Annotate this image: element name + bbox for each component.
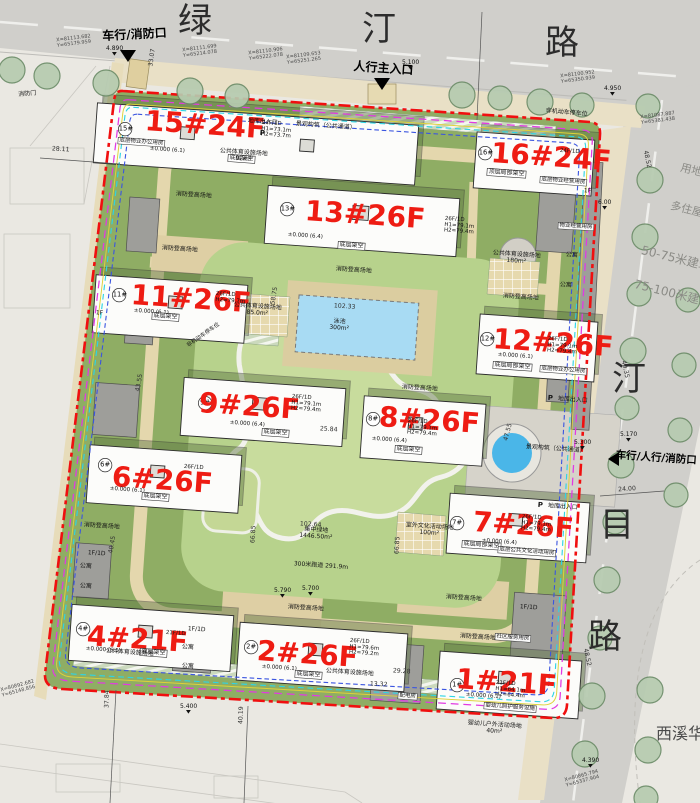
spot-elevation: 5.700 <box>302 586 319 598</box>
dimension-label: 13.32 <box>370 681 388 689</box>
right-road-name-char-2: 目 <box>600 508 634 544</box>
right-road-name-char-3: 路 <box>588 620 622 656</box>
elevation-marker-icon <box>280 594 285 600</box>
dimension-label: 40.19 <box>238 706 245 724</box>
pool-label: 泳池300m² <box>329 318 350 332</box>
entrance-arrow-down-icon <box>374 78 390 98</box>
apartment-tag: 公寓 <box>182 644 194 651</box>
elevation-marker-icon <box>186 710 191 716</box>
garage-entry-p-symbol: P <box>547 395 553 403</box>
dimension-label: 66.85 <box>394 536 402 554</box>
dimension-label: 25.84 <box>320 426 338 434</box>
spot-elevation: 5.100 <box>402 60 419 72</box>
adjacent-project-name: 西溪华府 <box>656 726 700 743</box>
building-7-spec: 26F/1DH1=79.1mH2=79.4m <box>521 514 552 533</box>
building-13-number: 13# <box>280 202 294 216</box>
elevation-marker-icon <box>602 206 607 212</box>
f1-tag: 1F <box>584 188 592 195</box>
spot-elevation: 6.00 <box>598 200 611 212</box>
f1d-tag: 1F/1D <box>520 604 538 612</box>
garage-entry-p-symbol: P <box>537 502 543 510</box>
building-13-label: 13#26F <box>304 196 426 234</box>
building-12-spec: 26F/1DH1=79.1mH2=79.4m <box>547 336 578 355</box>
dimension-label: 29.28 <box>393 668 411 676</box>
apartment-tag: 公寓 <box>566 252 578 259</box>
f1d-tag: 1F/1D <box>188 626 206 634</box>
building-15-number: 15# <box>118 122 132 136</box>
spot-elevation: 5.790 <box>274 588 291 600</box>
building-15-label: 15#24F <box>144 106 266 144</box>
top-road-name-char-3: 路 <box>545 26 579 62</box>
elevation-marker-icon <box>408 66 413 72</box>
apartment-tag: 公寓 <box>80 563 92 570</box>
f1-tag: 1F <box>96 310 104 317</box>
power-room-tag: 配电房 <box>398 692 418 700</box>
spot-elevation: 4.950 <box>604 86 621 98</box>
building-6-number: 6# <box>98 458 112 472</box>
building-9-spec: 26F/1DH1=79.1mH2=79.4m <box>291 394 322 413</box>
elevation-marker-icon <box>112 52 117 58</box>
spot-elevation: 4.390 <box>582 758 599 770</box>
building-13-spec: 26F/1DH1=79.1mH2=79.4m <box>444 216 475 235</box>
site-plan-canvas: 绿 汀 路 汀 目 路 车行/消防口 人行主入口 车行/人行/消防口 15# 1… <box>0 0 700 803</box>
apartment-tag: 公寓 <box>80 583 92 590</box>
fountain-water <box>492 433 532 473</box>
spot-elevation: 5.170 <box>620 432 637 444</box>
site-plan-drawing <box>0 0 700 803</box>
building-2-spec: 26F/1DH1=79.6mH2=79.2m <box>349 638 380 657</box>
top-road-name-char-2: 汀 <box>362 12 396 48</box>
elevation-marker-icon <box>588 764 593 770</box>
right-road-name-char-1: 汀 <box>612 362 646 398</box>
elevation-marker-icon <box>626 438 631 444</box>
spot-elevation: 5.400 <box>180 704 197 716</box>
spot-elevation: 5.300 <box>574 440 591 452</box>
dimension-label: 66.85 <box>250 525 258 543</box>
building-9-label: 9#26F <box>198 388 301 424</box>
top-road-name-char-1: 绿 <box>178 4 212 40</box>
garage-entry-p-symbol: P <box>259 130 265 138</box>
apartment-tag: 公寓 <box>182 663 194 670</box>
swimming-pool <box>282 280 438 376</box>
elevation-marker-icon <box>580 446 585 452</box>
dimension-label: 24.00 <box>618 486 636 494</box>
dimension-label: 37.84 <box>104 690 111 708</box>
spot-elevation: 4.890 <box>106 46 123 58</box>
elevation-marker-icon <box>610 92 615 98</box>
apartment-tag: 公寓 <box>560 282 572 289</box>
elevation-marker-icon <box>308 592 313 598</box>
building-11-number: 11# <box>112 288 126 302</box>
building-8-spec: 26F/1DH1=79.1mH2=79.4m <box>407 418 438 437</box>
f1d-tag: 1F/1D <box>88 550 106 558</box>
dimension-label: 28.11 <box>52 146 70 154</box>
